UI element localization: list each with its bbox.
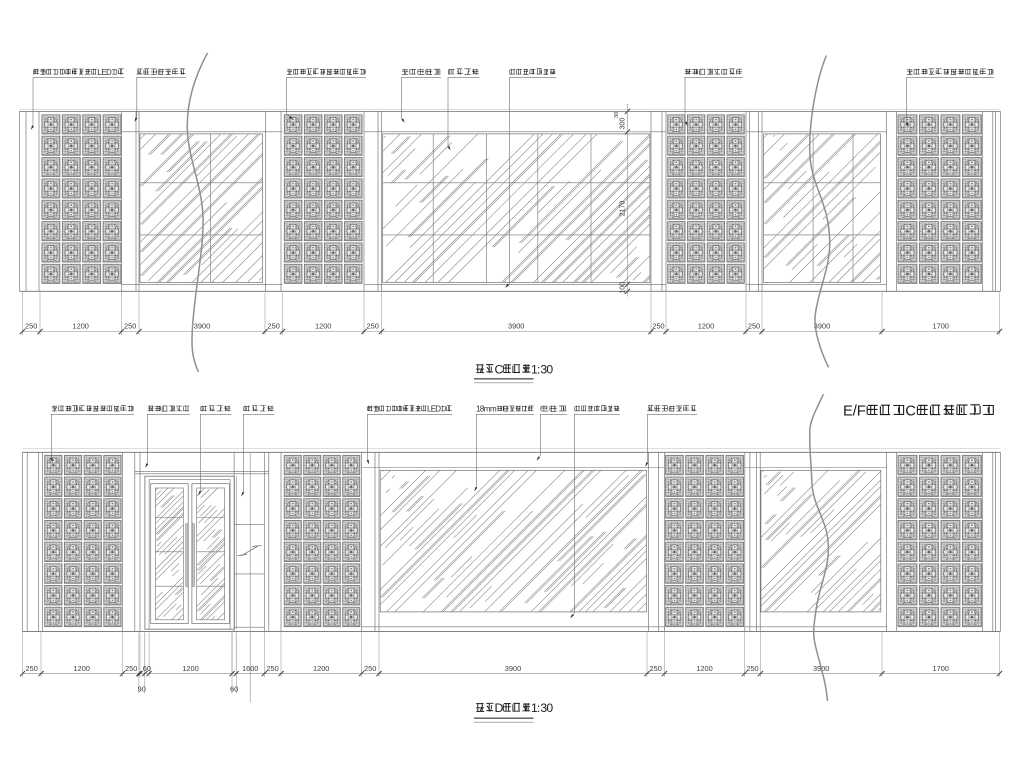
- svg-text:F: F: [857, 404, 866, 420]
- svg-text:250: 250: [748, 322, 760, 331]
- svg-text:1700: 1700: [932, 664, 948, 673]
- svg-text:250: 250: [268, 322, 280, 331]
- svg-text:1200: 1200: [313, 664, 329, 673]
- svg-text:90: 90: [138, 685, 146, 694]
- svg-text:1600: 1600: [242, 664, 258, 673]
- svg-text:250: 250: [367, 322, 379, 331]
- svg-text:D: D: [435, 405, 441, 414]
- svg-text:250: 250: [125, 664, 137, 673]
- svg-text:300: 300: [620, 118, 627, 130]
- svg-text:250: 250: [746, 664, 758, 673]
- svg-text:60: 60: [143, 664, 151, 673]
- svg-text:60: 60: [230, 685, 238, 694]
- svg-text:1700: 1700: [932, 322, 948, 331]
- svg-text:250: 250: [25, 322, 37, 331]
- svg-text:1200: 1200: [315, 322, 331, 331]
- svg-text:E: E: [843, 404, 853, 420]
- svg-text:C: C: [495, 362, 504, 376]
- svg-text:2170: 2170: [620, 201, 627, 217]
- svg-text:D: D: [106, 68, 112, 77]
- svg-text:0: 0: [546, 701, 553, 715]
- svg-text:3900: 3900: [508, 322, 524, 331]
- svg-text:m: m: [490, 405, 497, 414]
- svg-text:C: C: [905, 404, 916, 420]
- svg-text:30: 30: [614, 112, 620, 118]
- svg-text:250: 250: [26, 664, 38, 673]
- svg-text:3900: 3900: [194, 322, 210, 331]
- svg-text:250: 250: [652, 322, 664, 331]
- svg-text:D: D: [495, 701, 504, 715]
- svg-text:3900: 3900: [505, 664, 521, 673]
- svg-text:250: 250: [266, 664, 278, 673]
- svg-text:250: 250: [650, 664, 662, 673]
- svg-text:1200: 1200: [182, 664, 198, 673]
- svg-text:1200: 1200: [698, 322, 714, 331]
- svg-text:100: 100: [620, 282, 627, 294]
- svg-text:1200: 1200: [72, 322, 88, 331]
- svg-text:0: 0: [546, 362, 553, 376]
- svg-text:250: 250: [364, 664, 376, 673]
- svg-text:1200: 1200: [696, 664, 712, 673]
- svg-text:1200: 1200: [73, 664, 89, 673]
- svg-text:250: 250: [124, 322, 136, 331]
